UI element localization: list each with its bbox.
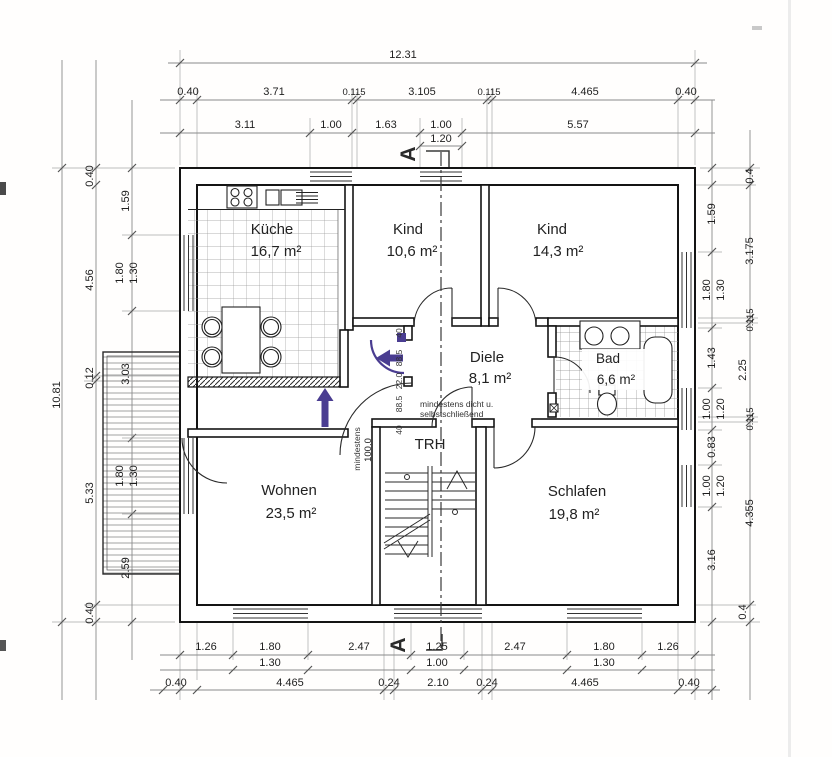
dim-label: 0.115 — [342, 87, 365, 98]
room-name-schlafen: Schlafen — [548, 483, 606, 500]
dim-label: 88.5 — [394, 349, 404, 366]
dim-label: 1.80 — [114, 465, 126, 486]
dim-label: 0.40 — [165, 677, 186, 689]
dim-label: 0.24 — [476, 677, 497, 689]
dim-label: 40 — [394, 425, 404, 435]
room-name-wohnen: Wohnen — [261, 482, 317, 499]
dim-label: 4.465 — [571, 86, 599, 98]
dim-label: 1.00 — [320, 119, 341, 131]
door-note-line1: mindestens dicht u. — [420, 399, 493, 409]
dim-label: 3.175 — [744, 237, 756, 265]
dim-label: 1.26 — [657, 641, 678, 653]
dim-label: 3.105 — [408, 86, 436, 98]
dim-label: 1.80 — [259, 641, 280, 653]
room-area-wohnen: 23,5 m² — [266, 505, 317, 522]
dim-label: 1.80 — [593, 641, 614, 653]
dim-label: 1.00 — [701, 398, 713, 419]
room-area-diele: 8,1 m² — [469, 370, 512, 387]
dim-label: 1.30 — [715, 279, 727, 300]
dim-label: 0.40 — [177, 86, 198, 98]
dim-label: 0.115 — [745, 308, 756, 331]
room-area-kind1: 10,6 m² — [387, 243, 438, 260]
dim-label: 4.465 — [571, 677, 599, 689]
room-name-kind1: Kind — [393, 221, 423, 238]
dim-label: 40 — [394, 328, 404, 338]
dim-label: 5.33 — [84, 482, 96, 503]
dim-label: 1.43 — [706, 347, 718, 368]
sink-icon — [266, 190, 279, 205]
dim-label: 1.00 — [426, 657, 447, 669]
dim-label: 12.31 — [389, 49, 417, 61]
dim-label: 2.59 — [120, 557, 132, 578]
dim-label: 1.25 — [426, 641, 447, 653]
floor-plan-drawing: A A Küche 16,7 m² Kind 10,6 m² Kind 14,3… — [0, 0, 832, 757]
dim-label: 0.4 — [744, 168, 756, 183]
dim-label: 88.5 — [394, 395, 404, 412]
dim-labels-right: 1.59 1.80 1.30 1.43 1.00 1.20 0.83 1.00 … — [701, 168, 756, 619]
dim-label: 3.03 — [120, 363, 132, 384]
dim-label: 2.47 — [348, 641, 369, 653]
bathtub-icon — [644, 337, 672, 403]
dim-label: 0.40 — [84, 165, 96, 186]
dim-label: 0.4 — [737, 604, 749, 619]
dim-label: 1.00 — [430, 119, 451, 131]
dim-label: 0.12 — [84, 367, 96, 388]
dim-label: 0.40 — [84, 602, 96, 623]
dim-label: 3.71 — [263, 86, 284, 98]
dim-label: 3.11 — [235, 119, 256, 131]
dim-label: 2.47 — [504, 641, 525, 653]
dim-label: 10.81 — [51, 381, 63, 409]
dim-labels-bottom: 1.26 1.80 2.47 1.25 2.47 1.80 1.26 1.30 … — [165, 641, 699, 689]
wc-icon — [598, 393, 617, 415]
basin-icon — [611, 327, 629, 345]
dim-label: 1.20 — [715, 398, 727, 419]
min-width-label: mindestens — [352, 427, 362, 470]
dim-label: 0.115 — [745, 407, 756, 430]
dim-label: 0.115 — [477, 87, 500, 98]
dim-label: 1.20 — [715, 475, 727, 496]
dining-table-icon — [222, 307, 260, 373]
dim-label: 1.00 — [701, 475, 713, 496]
dim-label: 1.59 — [120, 190, 132, 211]
dim-label: 1.30 — [593, 657, 614, 669]
section-marker-bottom: A — [387, 637, 410, 652]
dim-label: 1.26 — [195, 641, 216, 653]
dim-label: 0.40 — [678, 677, 699, 689]
dim-label: 1.20 — [430, 133, 451, 145]
dim-label: 5.57 — [567, 119, 588, 131]
dim-label: 4.355 — [744, 499, 756, 527]
new-wall-hatched — [188, 377, 340, 387]
floor-plan-page: A A Küche 16,7 m² Kind 10,6 m² Kind 14,3… — [0, 0, 832, 757]
room-area-kind2: 14,3 m² — [533, 243, 584, 260]
room-name-kind2: Kind — [537, 221, 567, 238]
min-width-value: 100.0 — [363, 438, 374, 462]
dim-label: 3.16 — [706, 549, 718, 570]
dim-label: 0.40 — [675, 86, 696, 98]
dim-label: 1.30 — [128, 262, 140, 283]
room-name-trh: TRH — [415, 436, 446, 453]
dim-label: 1.30 — [259, 657, 280, 669]
door-note-line2: selbstschließend — [420, 409, 484, 419]
dim-label: 1.30 — [128, 465, 140, 486]
room-name-diele: Diele — [470, 349, 504, 366]
basin-icon — [585, 327, 603, 345]
room-name-bad: Bad — [596, 351, 620, 366]
dim-label: 0.24 — [378, 677, 399, 689]
dim-label: 1.80 — [114, 262, 126, 283]
section-marker-top: A — [397, 146, 420, 161]
dim-label: 2.25 — [737, 359, 749, 380]
dim-label: 2.10 — [427, 677, 448, 689]
dim-label: 1.59 — [706, 203, 718, 224]
dim-label: 1.63 — [375, 119, 396, 131]
dim-label: 4.56 — [84, 269, 96, 290]
room-name-kueche: Küche — [251, 221, 294, 238]
dim-label: 0.83 — [706, 436, 718, 457]
room-area-kueche: 16,7 m² — [251, 243, 302, 260]
dim-label: 22.0 — [394, 372, 404, 389]
room-area-schlafen: 19,8 m² — [549, 506, 600, 523]
room-area-bad: 6,6 m² — [597, 372, 636, 387]
balcony — [103, 352, 180, 574]
dim-label: 4.465 — [276, 677, 304, 689]
dim-label: 1.80 — [701, 279, 713, 300]
